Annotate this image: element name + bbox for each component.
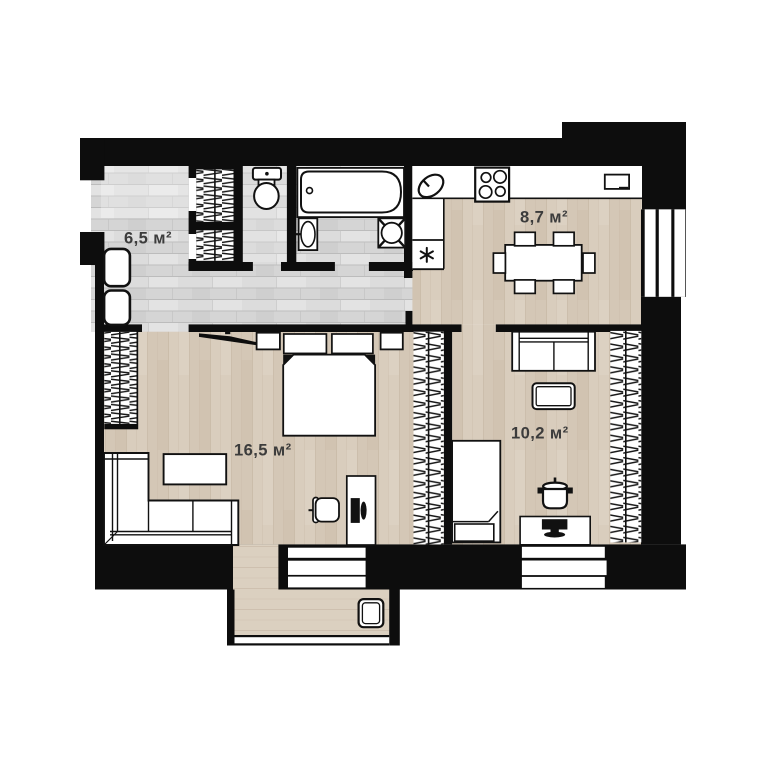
svg-text:6,5 м²: 6,5 м² [124, 229, 172, 248]
svg-text:16,5 м²: 16,5 м² [234, 441, 292, 460]
svg-text:10,2 м²: 10,2 м² [511, 424, 569, 443]
svg-text:8,7 м²: 8,7 м² [520, 208, 568, 227]
